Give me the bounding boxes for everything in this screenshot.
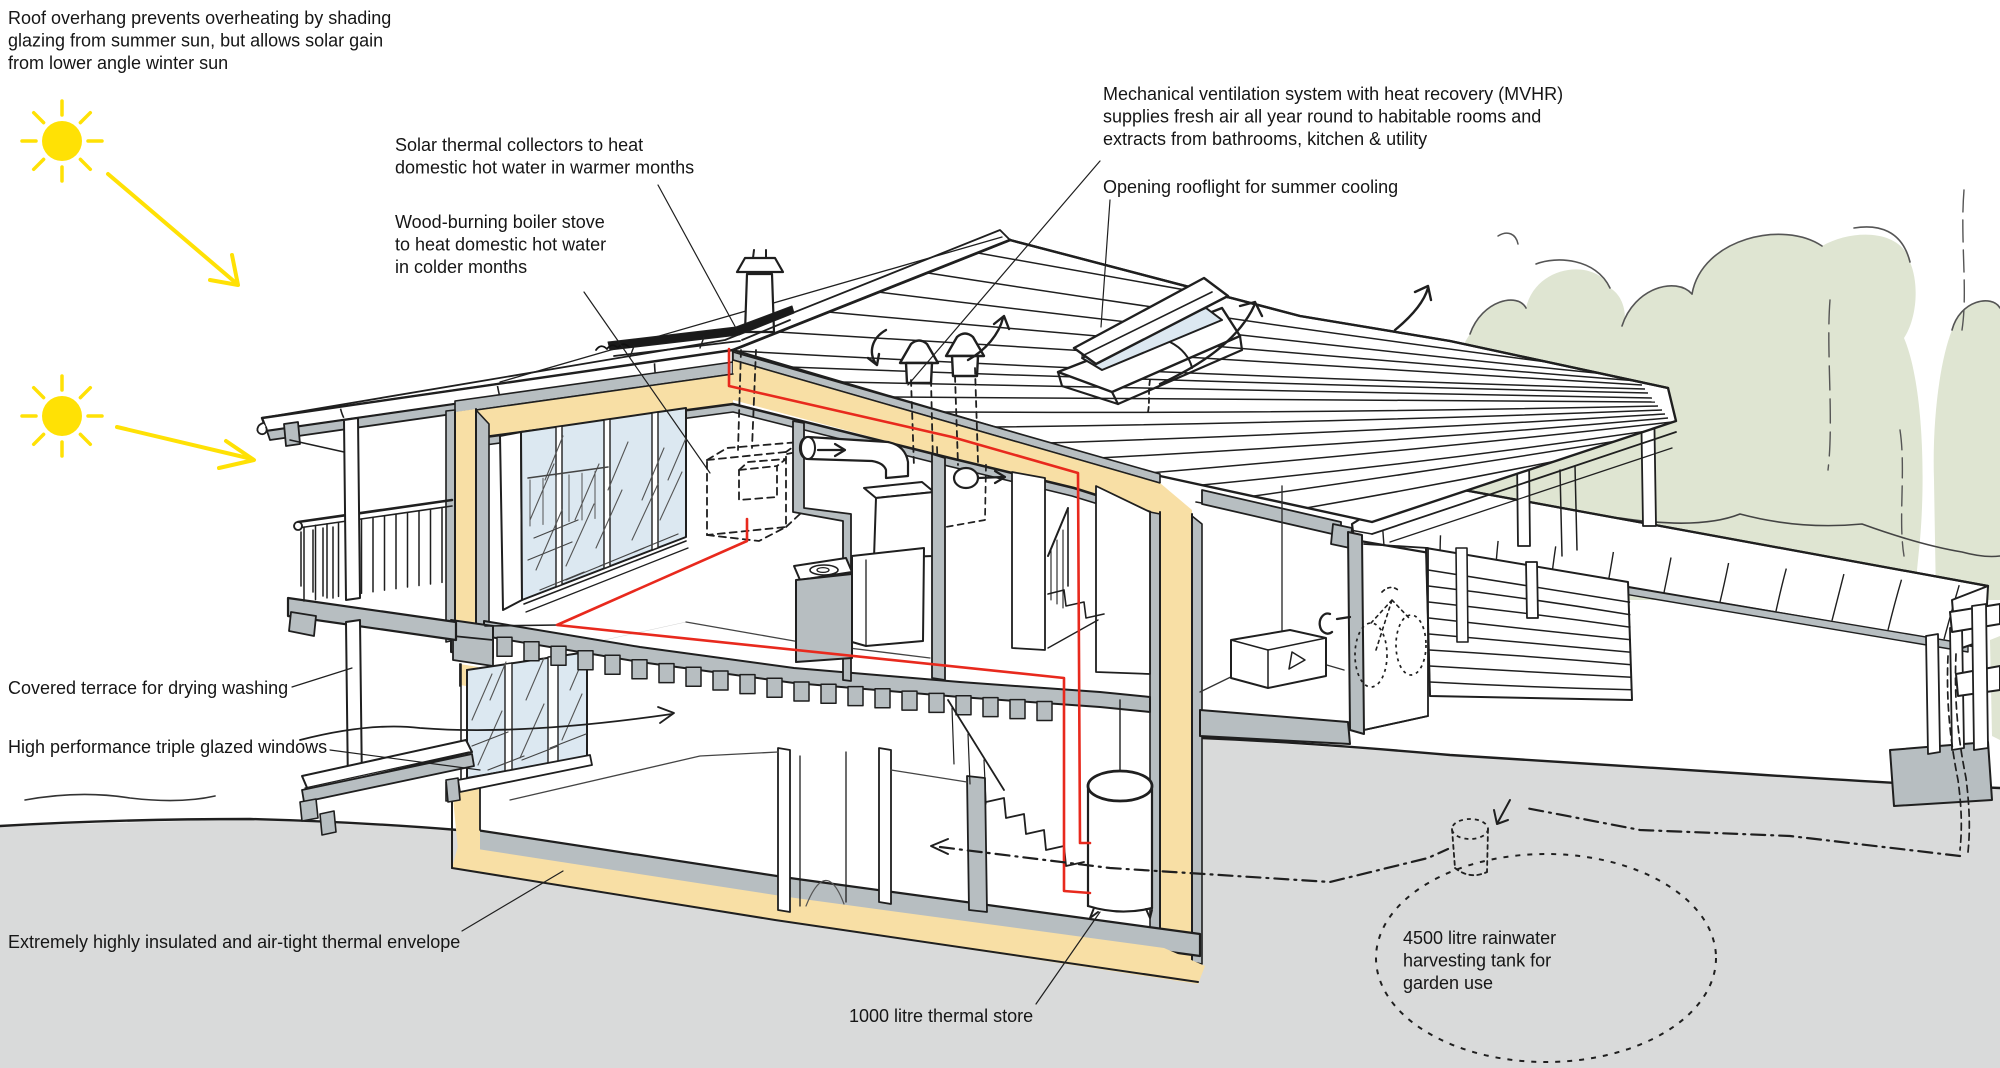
svg-text:in colder months: in colder months — [395, 257, 527, 277]
svg-text:extracts from bathrooms, kitch: extracts from bathrooms, kitchen & utili… — [1103, 129, 1427, 149]
svg-text:garden use: garden use — [1403, 973, 1493, 993]
svg-text:from lower angle winter sun: from lower angle winter sun — [8, 53, 228, 73]
svg-text:domestic hot water in warmer m: domestic hot water in warmer months — [395, 158, 694, 178]
svg-text:Solar thermal collectors to he: Solar thermal collectors to heat — [395, 135, 643, 155]
svg-text:4500 litre rainwater: 4500 litre rainwater — [1403, 928, 1556, 948]
svg-text:harvesting tank for: harvesting tank for — [1403, 951, 1551, 971]
svg-text:High performance triple glazed: High performance triple glazed windows — [8, 737, 327, 757]
svg-text:1000 litre thermal store: 1000 litre thermal store — [849, 1006, 1033, 1026]
svg-text:Mechanical ventilation system: Mechanical ventilation system with heat … — [1103, 84, 1563, 104]
svg-text:Roof overhang prevents overhea: Roof overhang prevents overheating by sh… — [8, 8, 391, 28]
svg-text:Wood-burning boiler stove: Wood-burning boiler stove — [395, 212, 605, 232]
svg-text:supplies fresh air all year ro: supplies fresh air all year round to hab… — [1103, 107, 1541, 127]
svg-text:Opening rooflight for summer c: Opening rooflight for summer cooling — [1103, 177, 1398, 197]
svg-text:to heat domestic hot water: to heat domestic hot water — [395, 235, 606, 255]
svg-text:Covered terrace for drying was: Covered terrace for drying washing — [8, 678, 288, 698]
svg-text:glazing from summer sun, but a: glazing from summer sun, but allows sola… — [8, 31, 383, 51]
svg-text:Extremely highly insulated and: Extremely highly insulated and air-tight… — [8, 932, 460, 952]
